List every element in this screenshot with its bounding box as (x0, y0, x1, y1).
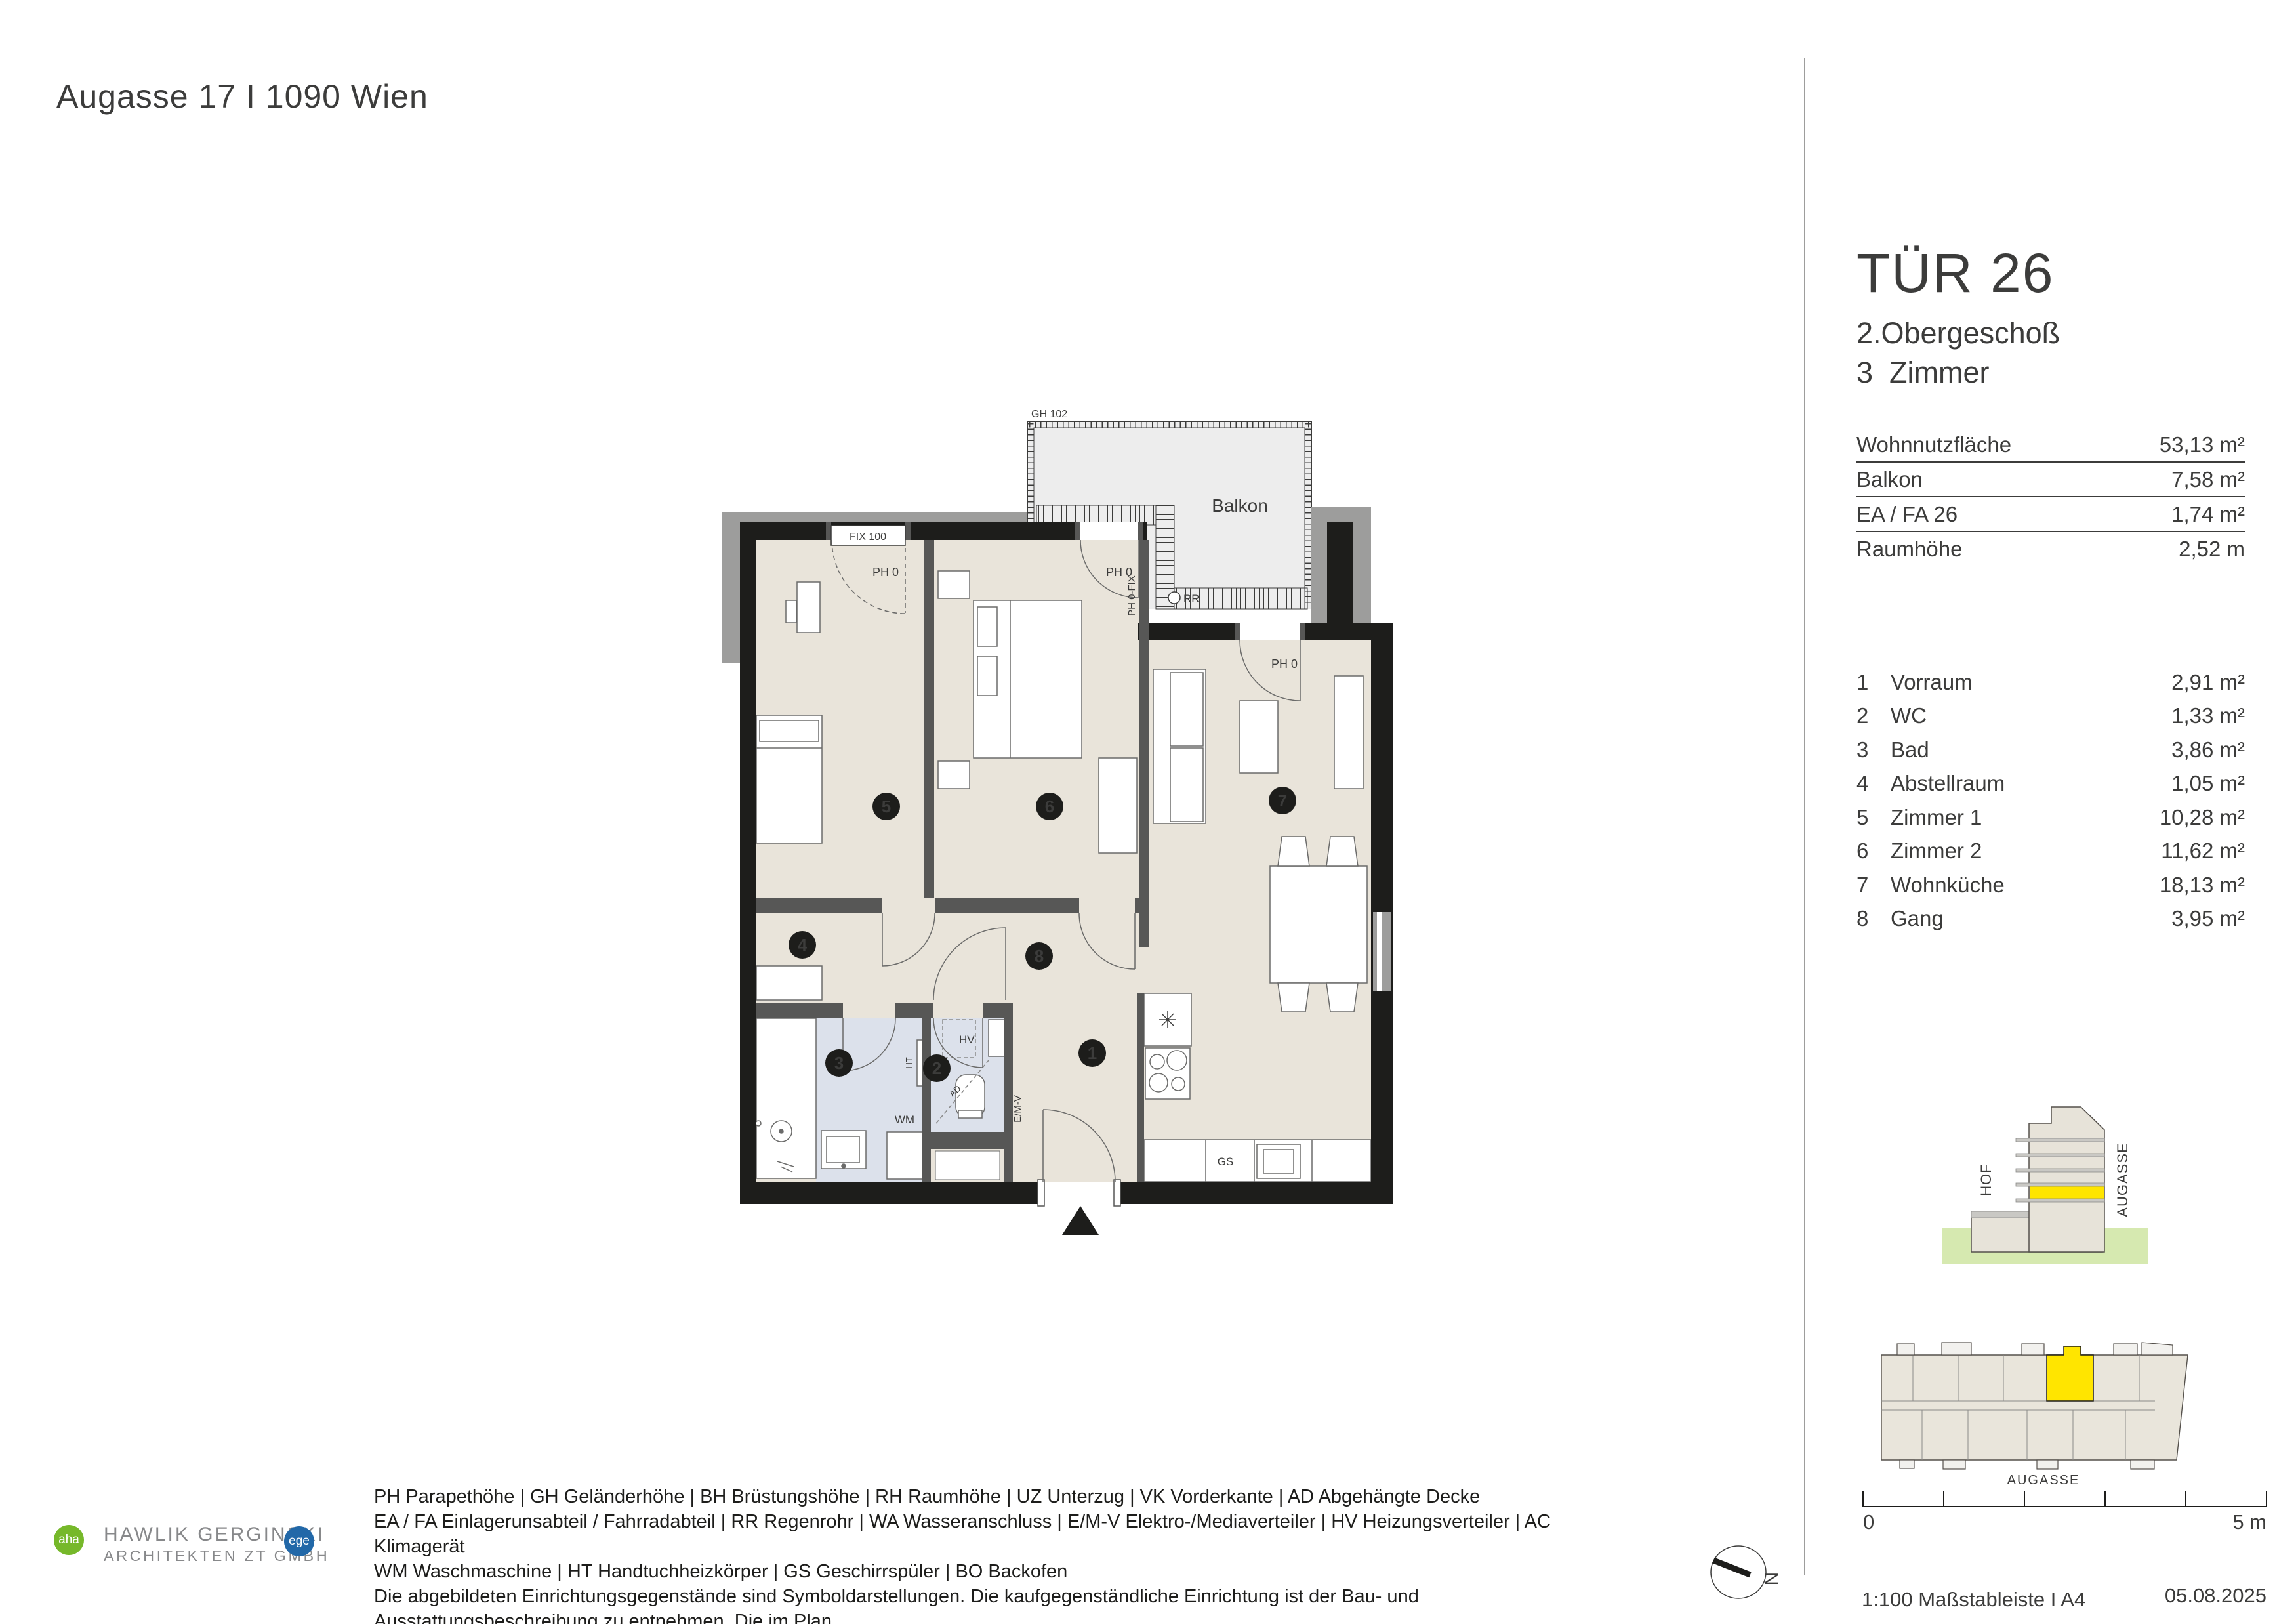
ph0-label-room5: PH 0 (872, 566, 899, 579)
scale-zero-label: 0 (1863, 1510, 1874, 1533)
svg-text:2: 2 (932, 1058, 941, 1078)
room-list: 1Vorraum2,91 m² 2WC1,33 m² 3Bad3,86 m² 4… (1856, 665, 2245, 936)
building-section-diagram: HOF AUGASSE (1942, 1089, 2296, 1312)
aha-logo: aha (54, 1525, 84, 1555)
hof-label: HOF (1978, 1163, 1994, 1196)
summary-row: Raumhöhe 2,52 m (1856, 532, 2245, 566)
entrance-arrow-icon (1062, 1206, 1099, 1235)
room-row: 3Bad3,86 m² (1856, 733, 2245, 767)
augasse-elevation-label: AUGASSE (2114, 1142, 2131, 1217)
vertical-divider (1804, 58, 1805, 1575)
room-row: 1Vorraum2,91 m² (1856, 665, 2245, 699)
svg-text:8: 8 (1035, 946, 1044, 966)
svg-text:4: 4 (798, 935, 808, 955)
room-row: 7Wohnküche18,13 m² (1856, 868, 2245, 902)
svg-text:6: 6 (1045, 797, 1054, 816)
plan-date: 05.08.2025 (2047, 1584, 2266, 1608)
svg-text:7: 7 (1278, 791, 1287, 810)
ege-logo: ege (284, 1526, 314, 1556)
wc-niche (935, 1151, 1000, 1180)
svg-text:1: 1 (1088, 1043, 1097, 1063)
ht-label: HT (904, 1057, 914, 1068)
gh-label: GH 102 (1031, 409, 1067, 420)
ph0fix-label: PH 0-FIX (1126, 575, 1138, 616)
area-summary-table: Wohnnutzfläche 53,13 m² Balkon 7,58 m² E… (1856, 428, 2245, 566)
summary-row: Balkon 7,58 m² (1856, 463, 2245, 497)
unit-floor: 2.Obergeschoß (1856, 316, 2060, 350)
room-row: 5Zimmer 110,28 m² (1856, 801, 2245, 835)
summary-row: EA / FA 26 1,74 m² (1856, 497, 2245, 532)
emv-label: E/M-V (1012, 1095, 1023, 1123)
room-row: 6Zimmer 211,62 m² (1856, 835, 2245, 869)
highlighted-unit (2047, 1346, 2093, 1401)
svg-text:3: 3 (834, 1053, 844, 1073)
highlighted-floor (2030, 1185, 2104, 1200)
floor-plan: RR GH 102 Balkon (715, 407, 1424, 1260)
fix-window-label: FIX 100 (850, 531, 886, 543)
rr-label: RR (1183, 593, 1200, 605)
wm-label: WM (895, 1114, 914, 1126)
unit-room-count: 3 Zimmer (1856, 356, 1990, 390)
hv-label: HV (959, 1033, 975, 1046)
legend-line: WM Waschmaschine | HT Handtuchheizkörper… (374, 1559, 1633, 1584)
page-title: Augasse 17 I 1090 Wien (56, 77, 428, 115)
legend-line: PH Parapethöhe | GH Geländerhöhe | BH Br… (374, 1484, 1633, 1509)
site-plan: AUGASSE (1870, 1339, 2289, 1489)
legend: PH Parapethöhe | GH Geländerhöhe | BH Br… (374, 1484, 1633, 1624)
summary-row: Wohnnutzfläche 53,13 m² (1856, 428, 2245, 463)
gs-label: GS (1218, 1156, 1234, 1168)
legend-line: EA / FA Einlagerunsabteil / Fahrradabtei… (374, 1509, 1633, 1559)
scale-bar: 0 5 m (1862, 1488, 2268, 1554)
scale-five-label: 5 m (2232, 1510, 2266, 1533)
augasse-site-label: AUGASSE (2007, 1473, 2080, 1488)
rainpipe-icon (1168, 592, 1180, 604)
room-row: 2WC1,33 m² (1856, 699, 2245, 734)
plan-sheet: Augasse 17 I 1090 Wien RR GH 102 Ba (0, 0, 2296, 1624)
unit-title: TÜR 26 (1856, 241, 2054, 305)
ph0-label-room7: PH 0 (1271, 657, 1298, 671)
north-label: N (1761, 1572, 1782, 1585)
balcony-label: Balkon (1212, 495, 1268, 516)
legend-line: Die abgebildeten Einrichtungsgegenstände… (374, 1584, 1633, 1624)
room-row: 4Abstellraum1,05 m² (1856, 767, 2245, 801)
room-row: 8Gang3,95 m² (1856, 902, 2245, 936)
svg-text:5: 5 (882, 797, 891, 816)
north-arrow: N (1704, 1541, 1803, 1613)
